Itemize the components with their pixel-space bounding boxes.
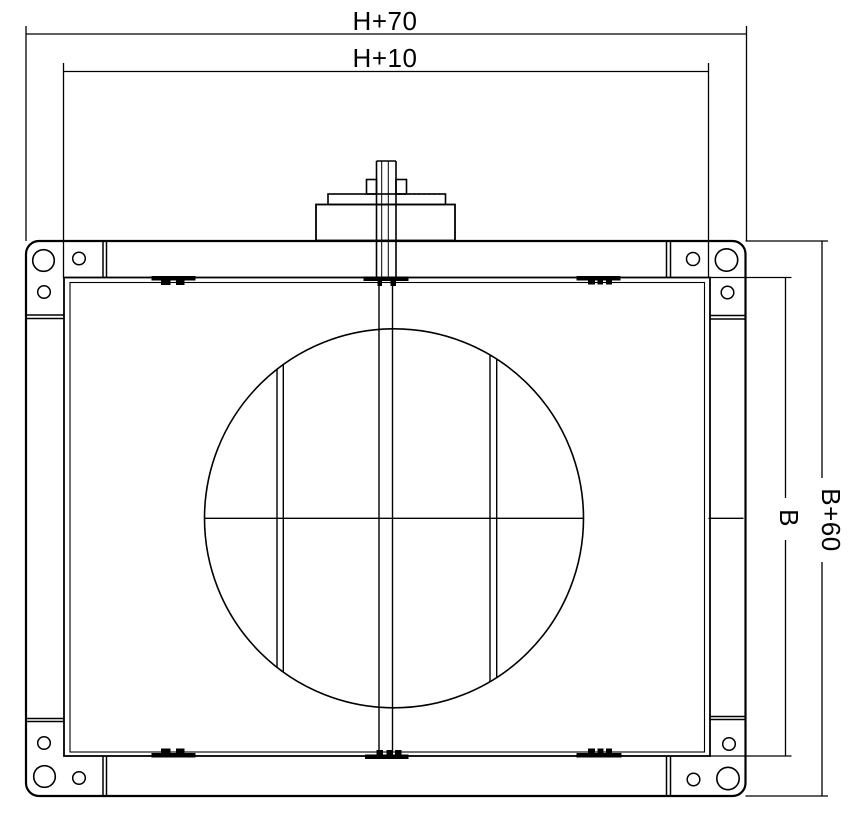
mounting-plate-upper	[328, 194, 446, 205]
damper-drawing	[0, 0, 861, 813]
bearing-tab	[395, 750, 402, 755]
shaft-collar	[367, 180, 407, 195]
hinge-tab	[598, 749, 604, 754]
blade-panel-outer-edge	[64, 278, 710, 757]
hinge-clip	[577, 753, 622, 758]
hinge-tab	[161, 281, 171, 286]
bolt-hole	[687, 253, 700, 266]
bolt-hole	[38, 286, 51, 299]
dim-label-width-outer: H+70	[337, 7, 433, 35]
blade-panel-inner-edge	[70, 283, 705, 753]
dim-label-height-outer: B+60	[817, 472, 845, 568]
hinge-tab	[176, 749, 185, 754]
shaft-bearing-top	[364, 277, 409, 282]
bolt-hole	[723, 738, 736, 751]
bolt-hole	[73, 252, 86, 265]
bolt-hole	[33, 250, 55, 272]
dim-label-height-inner: B	[775, 498, 803, 538]
bearing-tab	[378, 281, 383, 286]
bearing-and-hinge-clips	[152, 276, 622, 759]
bolt-hole	[715, 249, 737, 271]
technical-drawing-canvas: H+70 H+10 B B+60	[0, 0, 861, 813]
bearing-tab	[377, 750, 384, 755]
hinge-tab	[588, 749, 595, 754]
mounting-block	[316, 205, 455, 241]
dimension-width-inner	[64, 63, 709, 278]
bolt-hole	[687, 773, 700, 786]
bolt-hole	[717, 767, 739, 789]
corner-bolt-holes	[33, 249, 740, 790]
bolt-hole	[721, 286, 734, 299]
hinge-tab	[588, 281, 595, 285]
bearing-tab	[387, 750, 394, 755]
hinge-clip	[152, 276, 196, 281]
shaft-bearing-bottom	[365, 755, 409, 760]
hinge-clip	[577, 276, 621, 281]
hinge-tab	[176, 281, 185, 286]
bolt-hole	[34, 766, 56, 788]
hinge-tab	[161, 749, 171, 754]
bolt-hole	[38, 737, 51, 750]
center-axle	[379, 283, 393, 752]
drive-shaft	[377, 161, 397, 278]
actuator-shaft-assembly	[316, 161, 455, 278]
dim-label-width-inner: H+10	[337, 44, 433, 72]
bolt-hole	[73, 772, 86, 785]
hinge-tab	[606, 281, 612, 285]
hinge-clip	[152, 753, 196, 758]
hinge-tab	[606, 749, 612, 754]
hinge-tab	[598, 281, 604, 285]
bearing-tab	[391, 281, 397, 286]
